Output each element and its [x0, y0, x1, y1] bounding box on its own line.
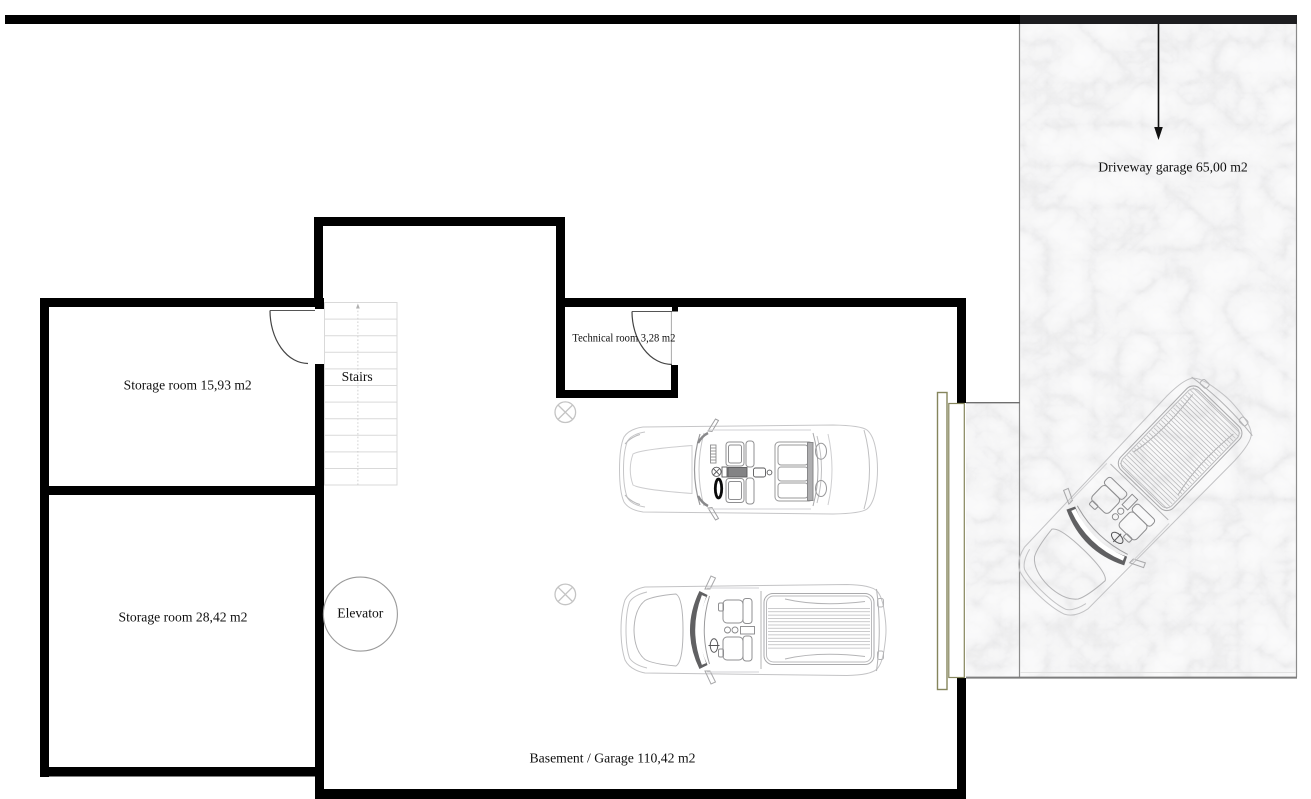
svg-text:Driveway garage 65,00 m2: Driveway garage 65,00 m2 [1098, 160, 1248, 175]
svg-text:Stairs: Stairs [342, 369, 373, 384]
svg-text:Technical room 3,28 m2: Technical room 3,28 m2 [572, 333, 675, 345]
svg-text:Basement / Garage 110,42 m2: Basement / Garage 110,42 m2 [530, 750, 696, 765]
svg-text:Storage room 15,93 m2: Storage room 15,93 m2 [124, 378, 252, 393]
svg-text:Elevator: Elevator [337, 606, 384, 621]
svg-text:Storage room 28,42 m2: Storage room 28,42 m2 [119, 610, 248, 625]
